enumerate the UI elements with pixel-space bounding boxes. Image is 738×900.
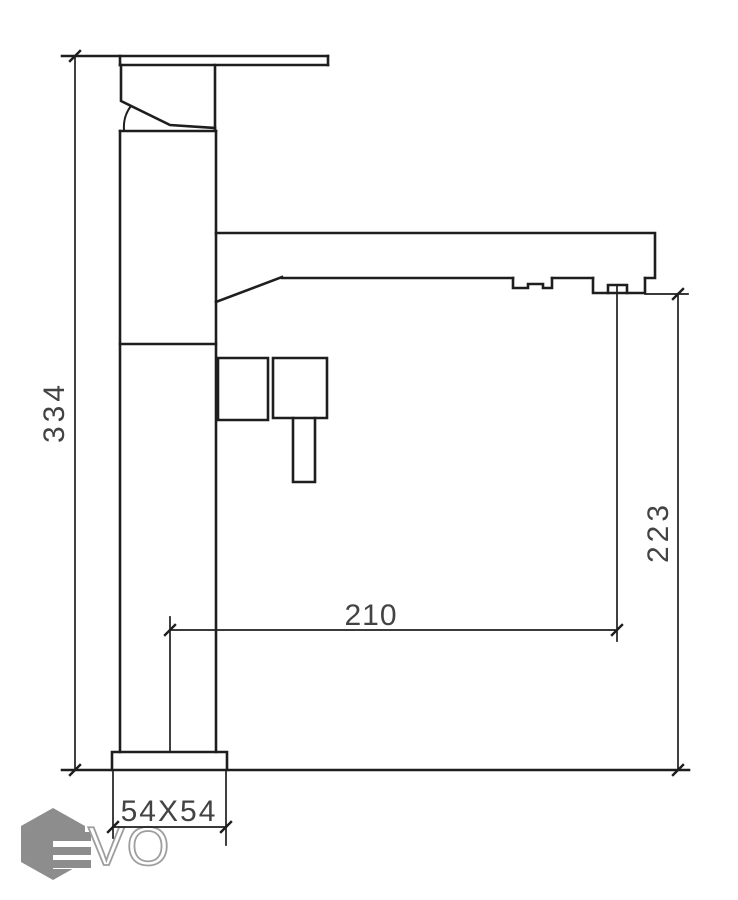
faucet-outline <box>62 56 689 770</box>
side-valve-stem <box>293 418 315 482</box>
logo-e-bars-icon <box>53 832 91 868</box>
spout-underside-diagonal <box>216 277 282 302</box>
side-valve <box>218 358 327 482</box>
dim-label-spout-reach: 210 <box>344 599 397 632</box>
faucet-body <box>120 131 216 752</box>
lever-base-left-taper <box>121 65 215 128</box>
lever-base <box>121 65 215 130</box>
dimension-tick-marks <box>70 51 683 832</box>
spout <box>216 233 655 302</box>
base-plate <box>112 752 227 770</box>
lever-handle <box>62 56 328 65</box>
side-valve-block-right <box>273 358 327 418</box>
spout-mount-notch <box>513 278 552 288</box>
dim-label-base-size: 54X54 <box>121 795 218 828</box>
logo-e-bar-middle <box>53 847 91 855</box>
page: { "drawing": { "dimension_labels": { "to… <box>0 0 738 900</box>
logo-e-bar-top <box>53 832 91 841</box>
lever-pivot-arc <box>124 106 131 130</box>
technical-drawing-canvas: VO <box>0 0 738 900</box>
dimension-labels: 334 223 210 54X54 <box>38 381 675 828</box>
side-valve-block-left <box>218 358 268 420</box>
dimension-lines <box>70 51 688 845</box>
spout-top-and-right <box>216 233 655 278</box>
logo-e-bar-bottom <box>53 860 91 868</box>
dim-label-total-height: 334 <box>38 381 71 443</box>
faucet-dimension-drawing: VO <box>0 0 738 900</box>
dim-label-outlet-height: 223 <box>642 501 675 563</box>
